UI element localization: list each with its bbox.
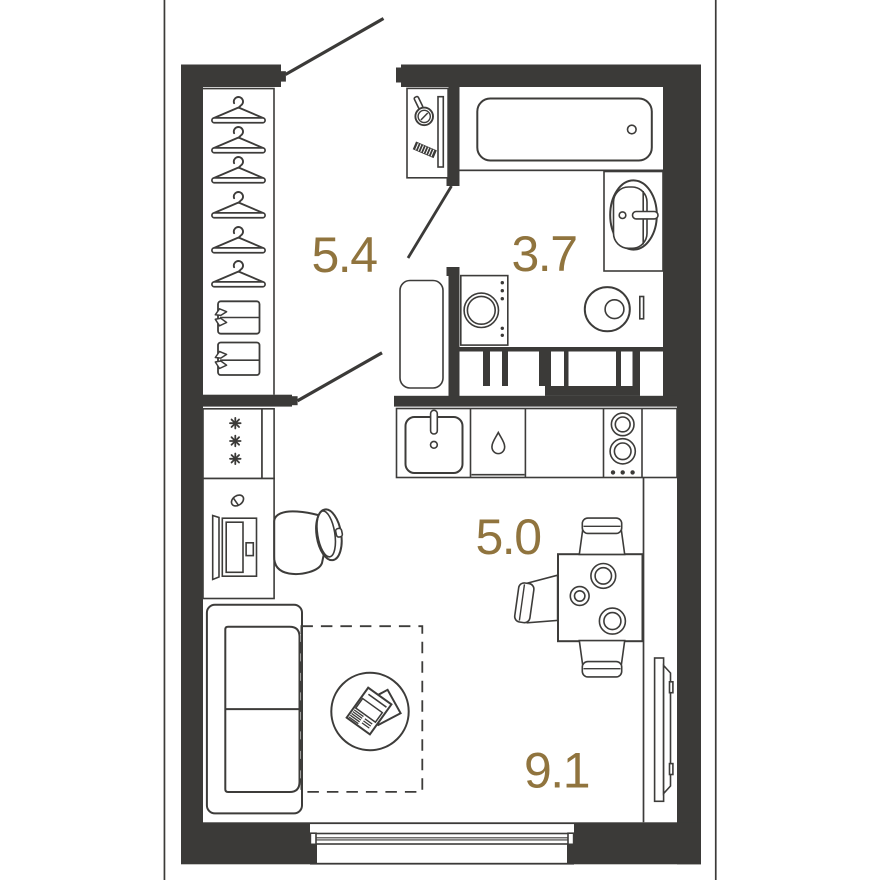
- svg-text:5.4: 5.4: [312, 227, 378, 283]
- svg-text:5.0: 5.0: [476, 509, 541, 565]
- svg-text:9.1: 9.1: [524, 743, 589, 799]
- svg-text:3.7: 3.7: [512, 226, 577, 282]
